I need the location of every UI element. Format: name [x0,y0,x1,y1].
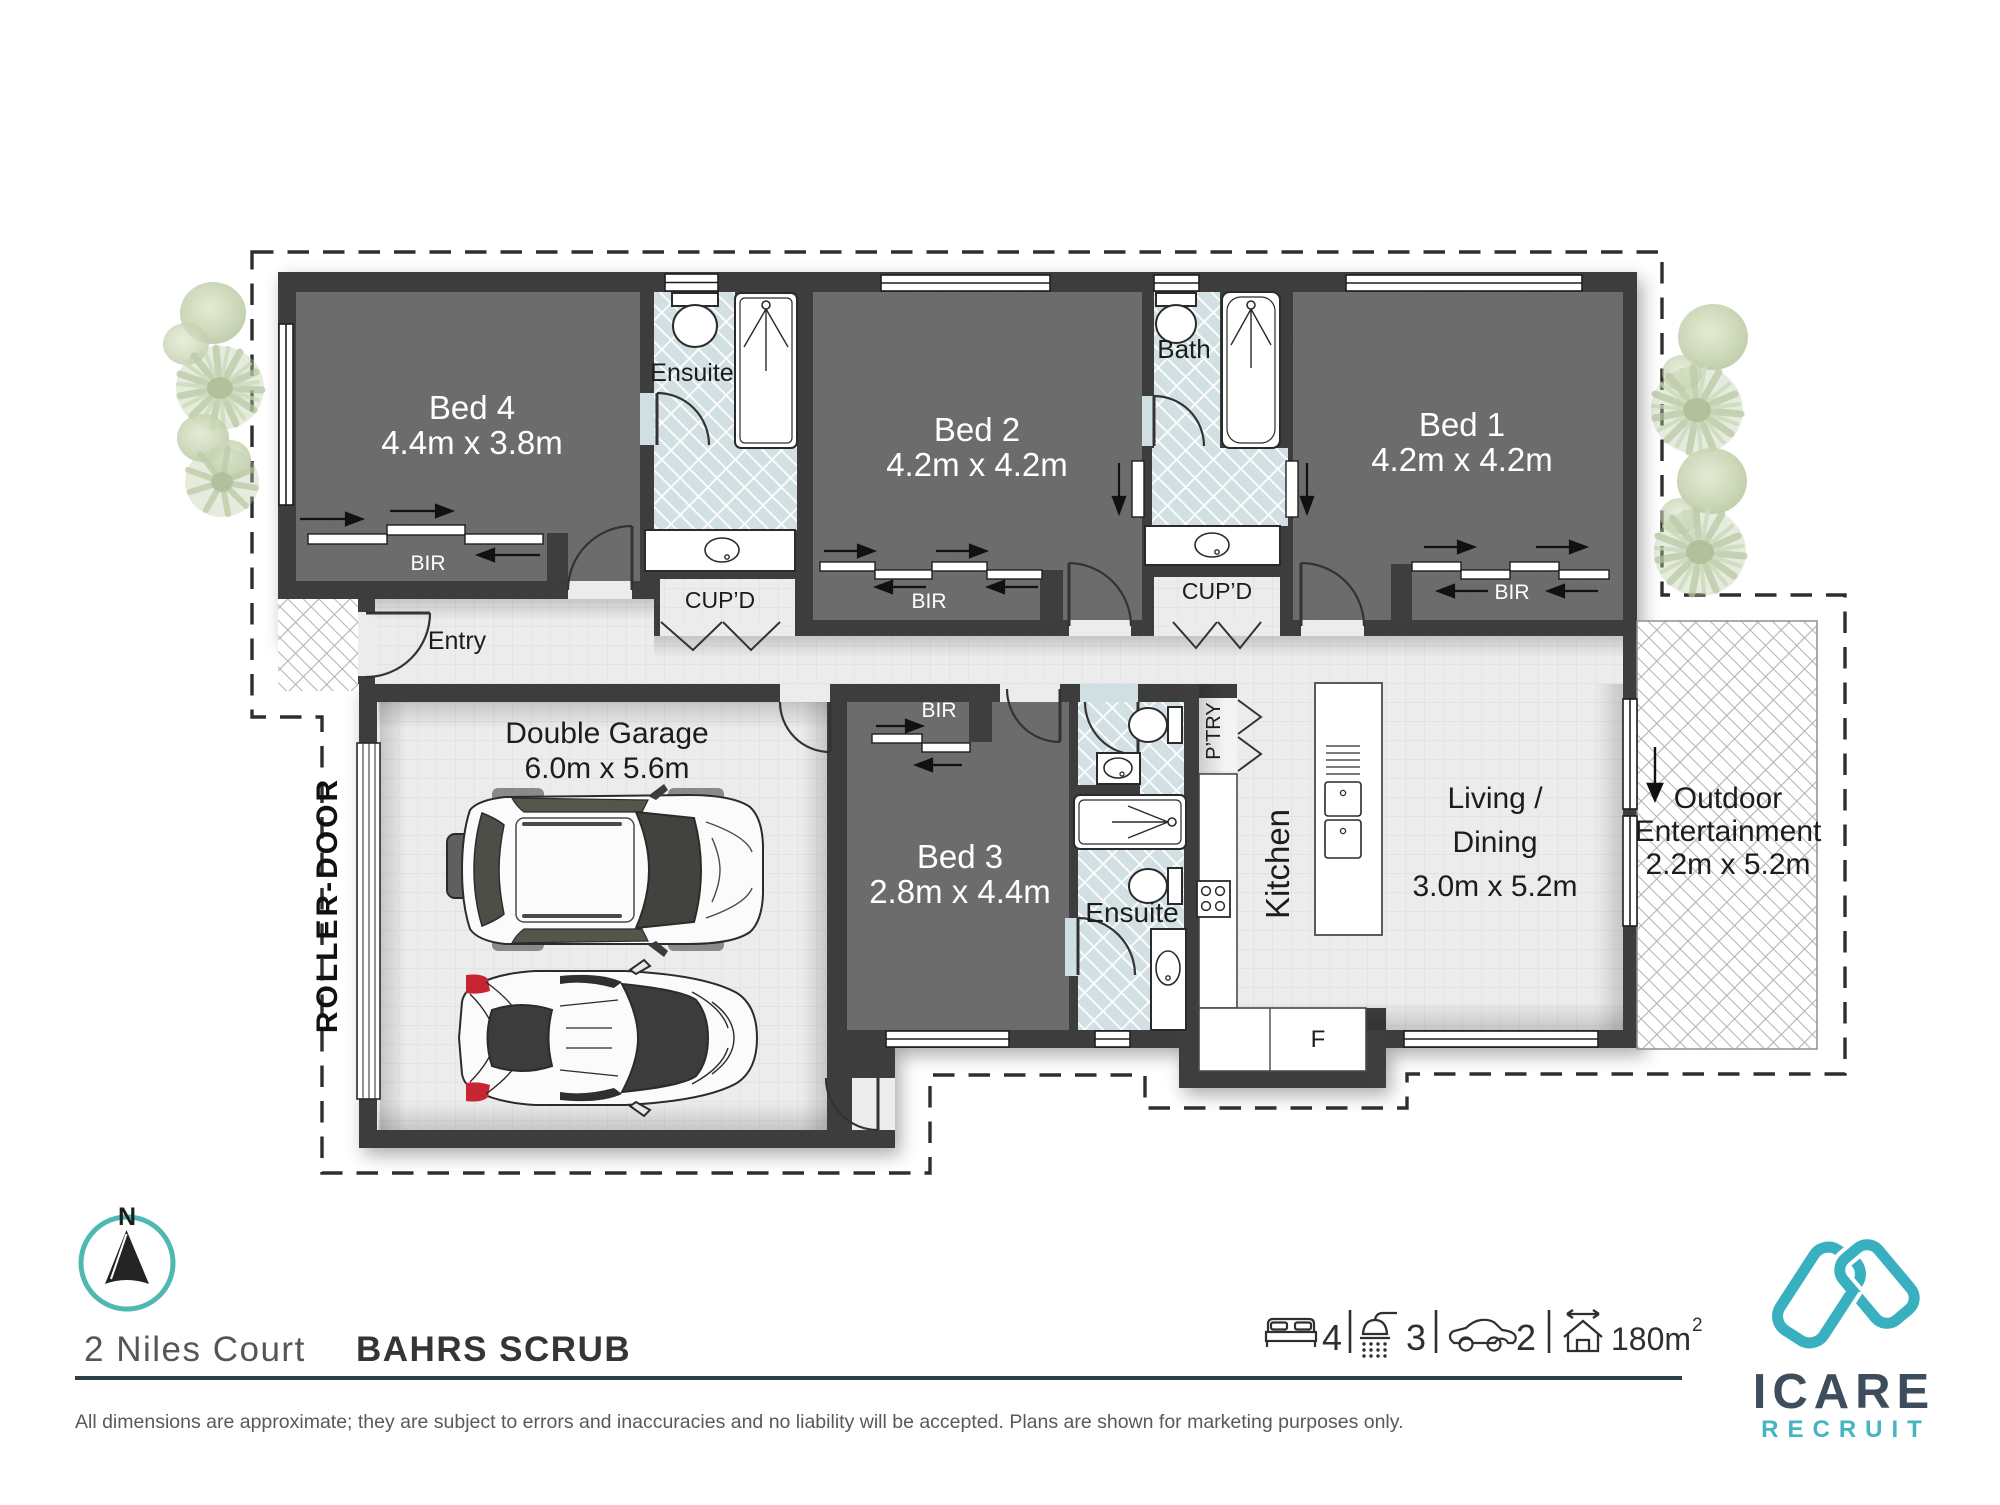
svg-text:BAHRS SCRUB: BAHRS SCRUB [356,1330,631,1369]
svg-text:4.4m x 3.8m: 4.4m x 3.8m [381,424,563,461]
svg-text:F: F [1311,1026,1326,1053]
svg-text:BIR: BIR [410,552,445,575]
svg-text:4.2m x 4.2m: 4.2m x 4.2m [1371,441,1553,478]
svg-text:Kitchen: Kitchen [1259,809,1296,919]
svg-text:Bed 2: Bed 2 [934,411,1020,448]
svg-text:Ensuite: Ensuite [1085,897,1178,928]
svg-text:2: 2 [1516,1317,1536,1358]
svg-text:180m: 180m [1611,1321,1691,1357]
svg-text:Dining: Dining [1452,826,1537,859]
svg-text:CUP’D: CUP’D [1182,578,1252,604]
svg-text:3.0m x 5.2m: 3.0m x 5.2m [1412,870,1577,903]
svg-text:BIR: BIR [1494,581,1529,604]
svg-text:Entertainment: Entertainment [1635,815,1822,848]
svg-text:4: 4 [1322,1317,1342,1358]
svg-text:Ensuite: Ensuite [650,359,733,387]
svg-text:Bed 3: Bed 3 [917,838,1003,875]
svg-text:4.2m x 4.2m: 4.2m x 4.2m [886,446,1068,483]
svg-text:3: 3 [1406,1317,1426,1358]
svg-text:2.2m x 5.2m: 2.2m x 5.2m [1645,848,1810,881]
svg-text:2: 2 [1692,1315,1703,1336]
svg-text:Entry: Entry [428,627,487,655]
svg-text:ROLLER-DOOR: ROLLER-DOOR [311,777,344,1033]
svg-text:Bath: Bath [1157,334,1211,364]
svg-text:RECRUIT: RECRUIT [1761,1416,1931,1443]
svg-text:CUP’D: CUP’D [685,587,755,613]
svg-text:Bed 4: Bed 4 [429,389,515,426]
svg-text:Double Garage: Double Garage [505,717,708,750]
svg-text:Living /: Living / [1447,782,1543,815]
svg-text:P’TRY: P’TRY [1203,702,1225,759]
svg-text:2.8m x 4.4m: 2.8m x 4.4m [869,873,1051,910]
svg-text:6.0m x 5.6m: 6.0m x 5.6m [524,752,689,785]
svg-text:N: N [118,1203,136,1231]
svg-text:All dimensions are approximate: All dimensions are approximate; they are… [75,1411,1404,1433]
svg-text:ICARE: ICARE [1753,1365,1935,1419]
svg-text:Outdoor: Outdoor [1674,782,1782,815]
svg-text:2 Niles Court: 2 Niles Court [84,1330,306,1369]
svg-text:BIR: BIR [911,590,946,613]
svg-text:BIR: BIR [921,699,956,722]
svg-text:Bed 1: Bed 1 [1419,406,1505,443]
